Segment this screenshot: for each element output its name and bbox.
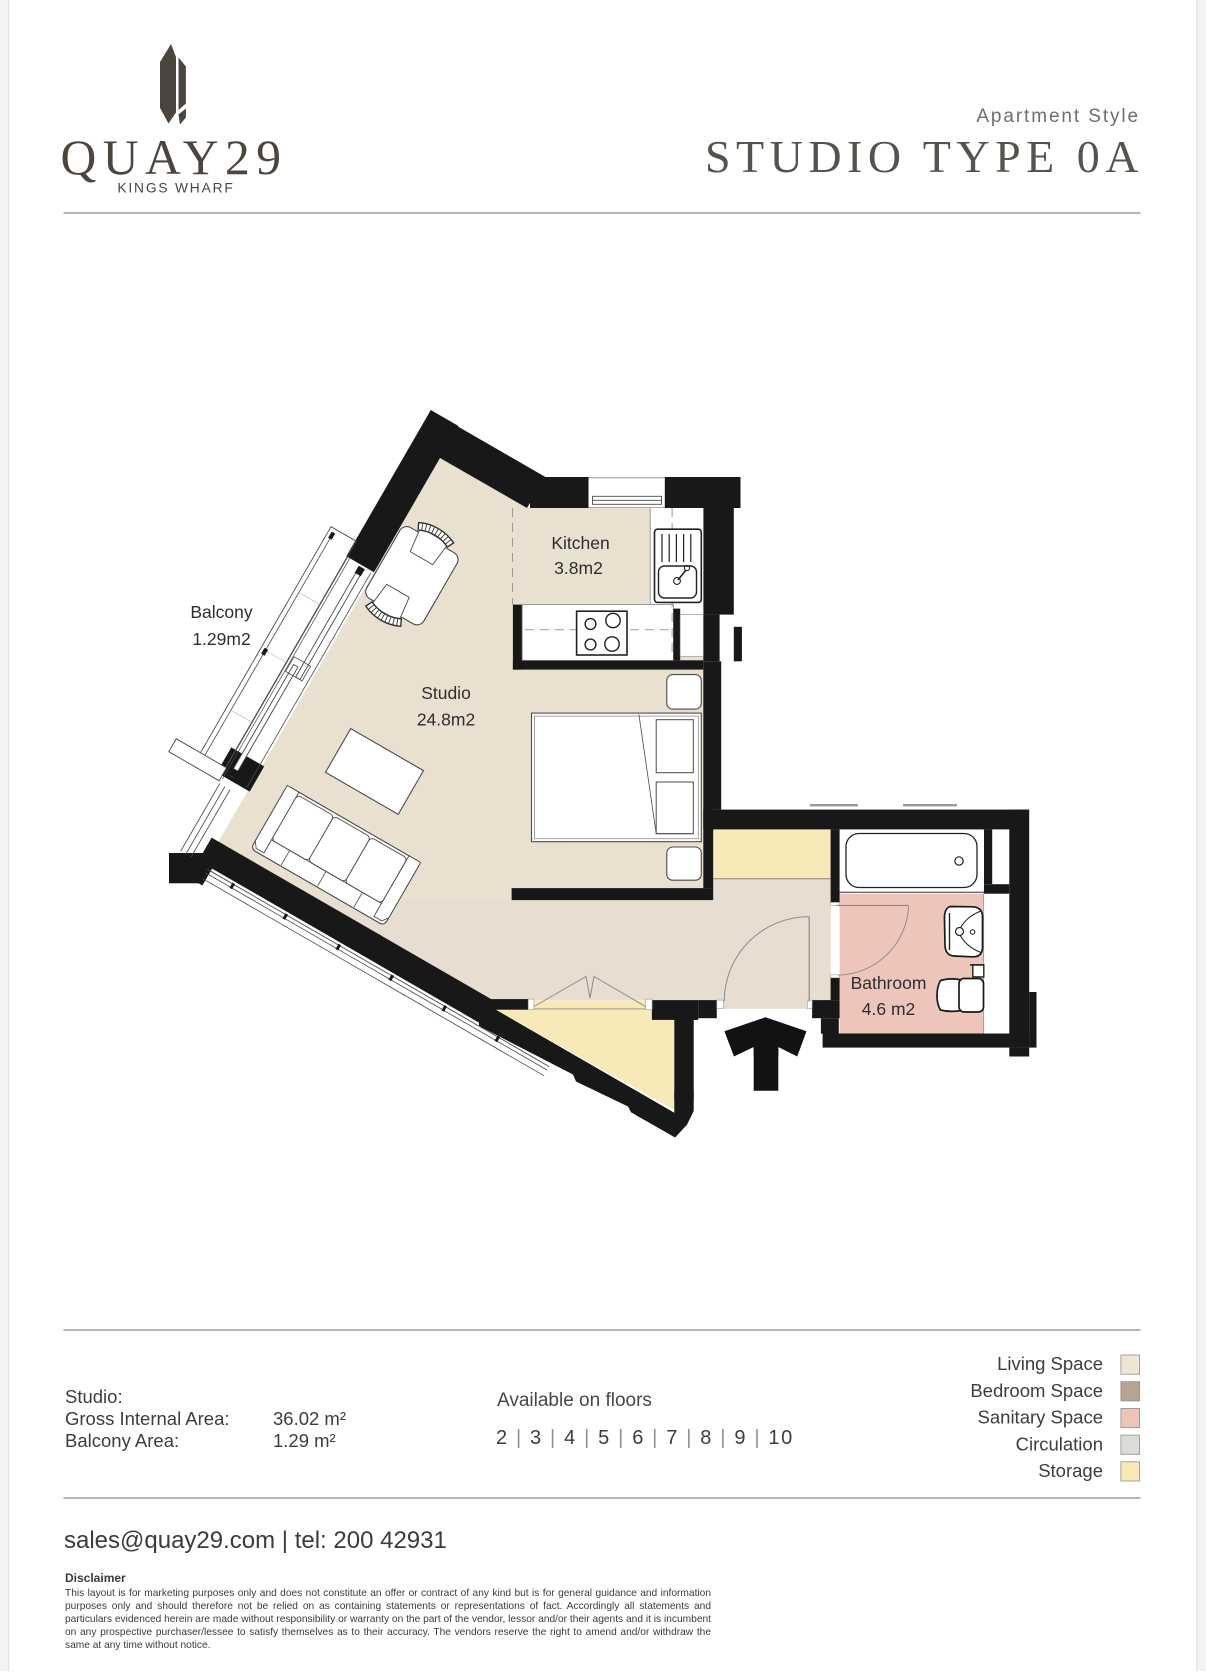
svg-text:36.02 m²: 36.02 m² <box>273 1408 346 1429</box>
svg-text:3.8m2: 3.8m2 <box>554 558 603 578</box>
svg-text:STUDIO TYPE 0A: STUDIO TYPE 0A <box>705 131 1144 182</box>
svg-text:Available on floors: Available on floors <box>497 1390 652 1411</box>
svg-text:1.29m2: 1.29m2 <box>192 629 250 649</box>
svg-text:Studio:: Studio: <box>65 1386 123 1407</box>
svg-text:Sanitary Space: Sanitary Space <box>978 1407 1103 1428</box>
svg-text:4.6 m2: 4.6 m2 <box>862 999 916 1019</box>
svg-text:Circulation: Circulation <box>1016 1433 1103 1454</box>
svg-text:Kitchen: Kitchen <box>551 533 609 553</box>
svg-text:Living Space: Living Space <box>997 1353 1103 1374</box>
svg-text:KINGS WHARF: KINGS WHARF <box>117 181 234 196</box>
svg-text:QUAY29: QUAY29 <box>61 130 288 185</box>
svg-text:Bedroom Space: Bedroom Space <box>970 1380 1103 1401</box>
svg-text:2 | 3 | 4 | 5 | 6 | 7 | 8 | 9: 2 | 3 | 4 | 5 | 6 | 7 | 8 | 9 | 10 <box>496 1427 794 1449</box>
svg-text:Bathroom: Bathroom <box>851 973 927 993</box>
svg-text:Gross Internal Area:: Gross Internal Area: <box>65 1408 230 1429</box>
svg-text:1.29 m²: 1.29 m² <box>273 1430 336 1451</box>
svg-text:Apartment Style: Apartment Style <box>976 106 1140 127</box>
svg-text:sales@quay29.com | tel: 200 42: sales@quay29.com | tel: 200 42931 <box>64 1527 447 1554</box>
svg-text:Balcony: Balcony <box>190 602 253 622</box>
svg-text:Studio: Studio <box>421 683 471 703</box>
svg-text:24.8m2: 24.8m2 <box>417 710 475 730</box>
svg-text:Balcony Area:: Balcony Area: <box>65 1430 179 1451</box>
svg-text:Storage: Storage <box>1038 1460 1103 1481</box>
